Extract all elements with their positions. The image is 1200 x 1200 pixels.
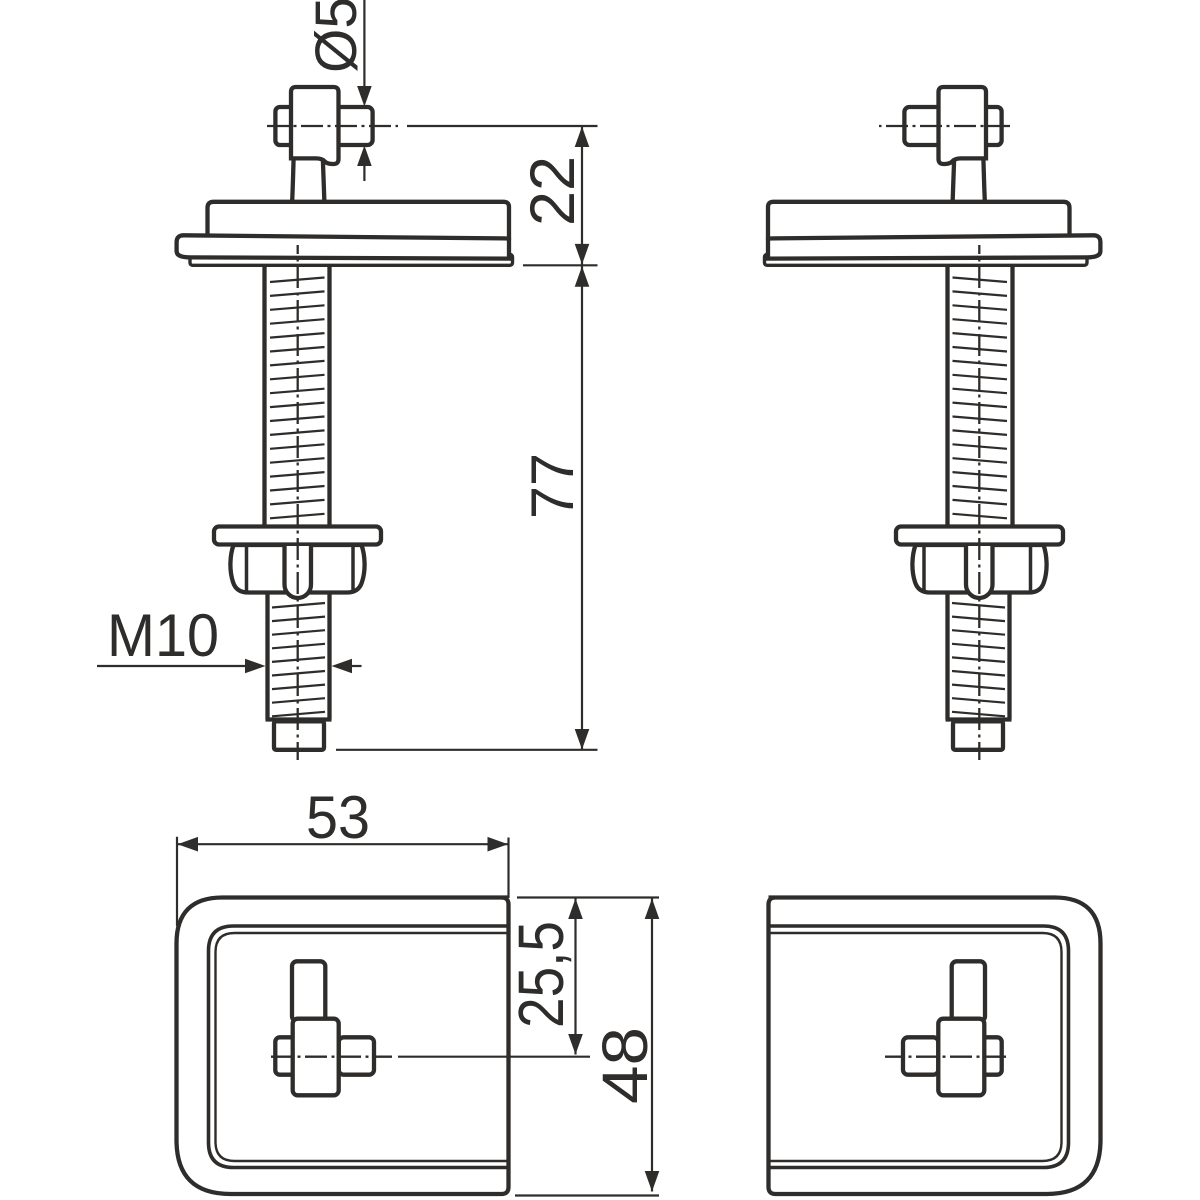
svg-text:77: 77	[519, 453, 586, 519]
svg-text:22: 22	[518, 156, 588, 226]
svg-text:Ø5: Ø5	[304, 0, 369, 73]
svg-text:25,5: 25,5	[505, 921, 577, 1028]
svg-text:48: 48	[589, 1027, 661, 1104]
svg-text:M10: M10	[107, 602, 219, 669]
svg-text:53: 53	[306, 784, 370, 851]
